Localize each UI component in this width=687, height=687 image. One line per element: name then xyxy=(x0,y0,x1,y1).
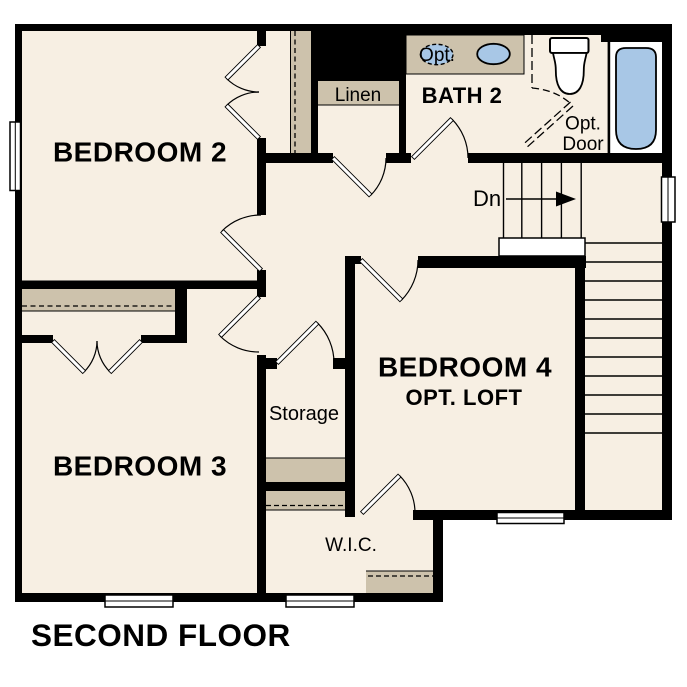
svg-text:Linen: Linen xyxy=(335,85,382,106)
svg-text:BEDROOM 4: BEDROOM 4 xyxy=(378,352,552,383)
svg-text:OPT. LOFT: OPT. LOFT xyxy=(406,385,523,410)
svg-text:BEDROOM 3: BEDROOM 3 xyxy=(53,451,227,482)
svg-text:BEDROOM 2: BEDROOM 2 xyxy=(53,137,227,168)
svg-text:Opt.: Opt. xyxy=(419,45,455,66)
svg-text:BATH 2: BATH 2 xyxy=(422,83,503,108)
svg-text:Opt.: Opt. xyxy=(565,114,601,135)
svg-text:Dn: Dn xyxy=(473,186,501,211)
svg-text:Door: Door xyxy=(562,134,604,155)
svg-text:SECOND FLOOR: SECOND FLOOR xyxy=(31,617,291,653)
svg-text:Storage: Storage xyxy=(269,403,339,425)
svg-text:W.I.C.: W.I.C. xyxy=(325,535,377,556)
